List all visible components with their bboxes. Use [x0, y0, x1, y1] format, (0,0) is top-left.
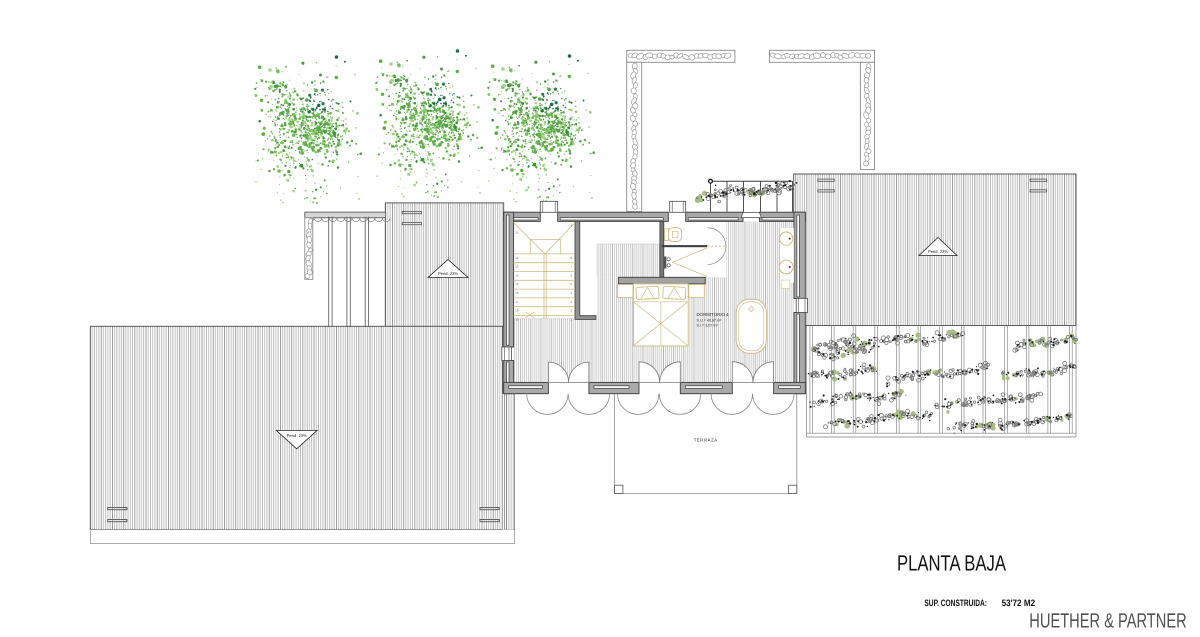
svg-text:53'72 M2: 53'72 M2 — [1002, 598, 1036, 608]
svg-text:PLANTA BAJA: PLANTA BAJA — [897, 551, 1006, 576]
svg-text:11: 11 — [515, 231, 518, 235]
svg-text:13: 13 — [515, 265, 519, 269]
svg-text:S.I.= 3,07 m²: S.I.= 3,07 m² — [697, 324, 719, 328]
svg-text:12: 12 — [515, 256, 519, 260]
svg-text:14: 14 — [515, 273, 519, 277]
svg-text:DORMITORIO 4: DORMITORIO 4 — [697, 312, 730, 317]
svg-text:Pend. 23%: Pend. 23% — [438, 271, 458, 276]
svg-text:S.U.= 40,87 m²: S.U.= 40,87 m² — [697, 319, 723, 323]
svg-text:18: 18 — [515, 309, 519, 313]
svg-text:SUP. CONSTRUIDA:: SUP. CONSTRUIDA: — [924, 598, 987, 608]
svg-text:19: 19 — [515, 317, 519, 321]
svg-text:Pend. 23%: Pend. 23% — [287, 433, 307, 438]
svg-text:15: 15 — [515, 282, 519, 286]
svg-text:HUETHER & PARTNER: HUETHER & PARTNER — [1029, 610, 1186, 633]
svg-text:16: 16 — [515, 291, 519, 295]
svg-text:TERRAZA: TERRAZA — [694, 438, 718, 443]
svg-text:17: 17 — [515, 300, 519, 304]
svg-text:Pend. 23%: Pend. 23% — [928, 249, 948, 254]
